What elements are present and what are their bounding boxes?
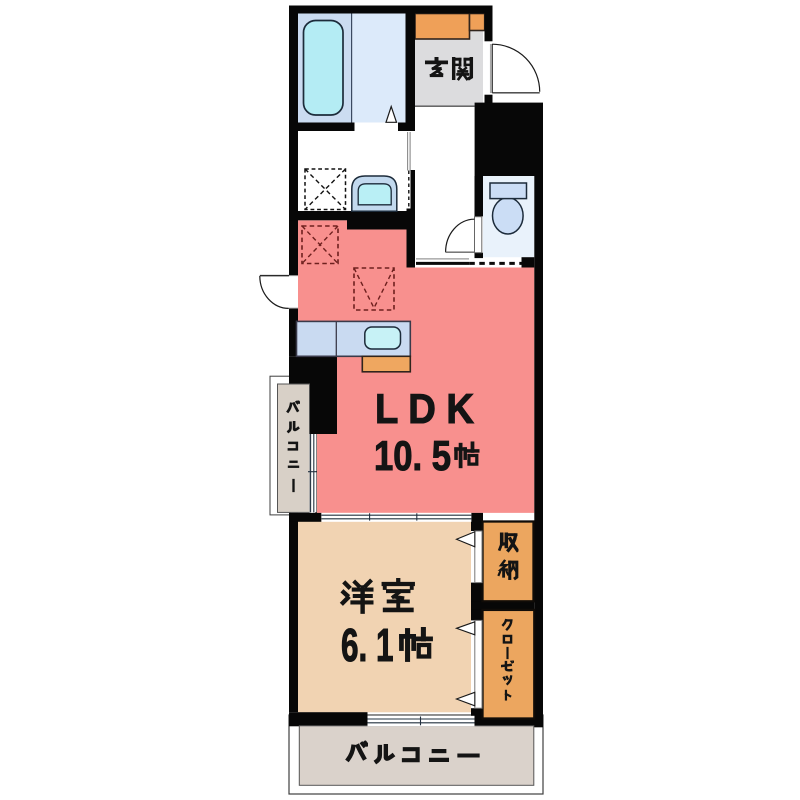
svg-text:6. 1: 6. 1: [341, 619, 394, 671]
svg-text:10. 5: 10. 5: [374, 432, 451, 479]
svg-text:L D K: L D K: [375, 385, 474, 432]
